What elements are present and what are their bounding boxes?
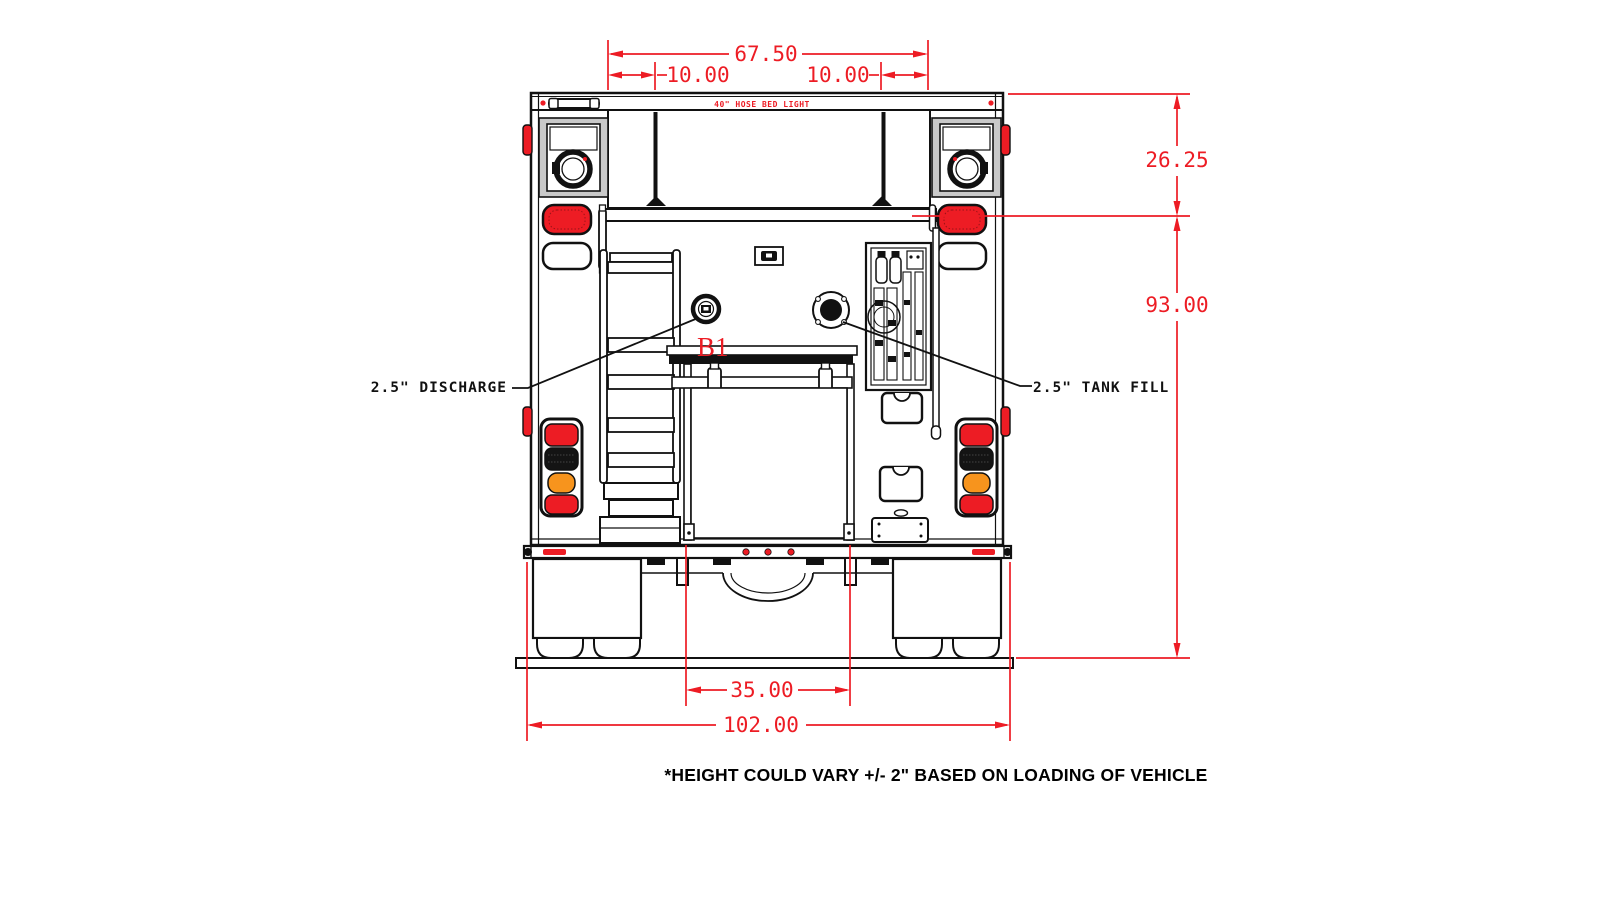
left-mudflap-tires [533, 559, 641, 658]
rear-bumper [524, 546, 1012, 558]
step-bracket-upper [882, 393, 922, 423]
dim-compartment-width: 35.00 [730, 678, 793, 702]
right-backup-light [938, 243, 986, 269]
right-small-handle [930, 205, 936, 231]
pike-pole [932, 228, 941, 439]
camera-bracket [755, 247, 783, 265]
center-marker-light [788, 549, 794, 555]
control-panel [866, 243, 931, 390]
center-marker-light [743, 549, 749, 555]
rear-view-truck-drawing: 40" HOSE BED LIGHT [0, 0, 1600, 900]
right-upper-panel [932, 118, 1001, 197]
left-upper-side-marker [523, 125, 532, 155]
right-mid-side-marker [1001, 407, 1010, 436]
discharge-label: 2.5" DISCHARGE [371, 380, 507, 396]
marker-dot-left [540, 100, 545, 105]
left-upper-brake-light [543, 205, 591, 234]
footnote: *HEIGHT COULD VARY +/- 2" BASED ON LOADI… [664, 765, 1207, 785]
right-reflector [972, 549, 995, 555]
left-backup-light [543, 243, 591, 269]
dim-right-offset: 10.00 [806, 63, 869, 87]
dimension-top-group: 67.50 10.00 10.00 [608, 40, 928, 90]
marker-dot-right [988, 100, 993, 105]
dim-hose-bed-width: 67.50 [734, 42, 797, 66]
hose-bed-beam [604, 209, 936, 221]
right-upper-brake-light [938, 205, 986, 234]
tank-fill-label: 2.5" TANK FILL [1033, 380, 1169, 396]
left-upper-panel [539, 118, 608, 197]
dim-overall-width: 102.00 [723, 713, 799, 737]
center-marker-light [765, 549, 771, 555]
dim-upper-height: 26.25 [1145, 148, 1208, 172]
hose-bed [604, 110, 936, 221]
axle-arch [723, 573, 813, 601]
right-mudflap-tires [893, 559, 1001, 658]
right-upper-side-marker [1001, 125, 1010, 155]
grab-handle [549, 99, 599, 109]
left-mid-side-marker [523, 407, 532, 436]
compartment-id-label: B1 [697, 332, 729, 362]
left-reflector [543, 549, 566, 555]
dim-left-offset: 10.00 [666, 63, 729, 87]
dim-body-height: 93.00 [1145, 293, 1208, 317]
underbody [593, 558, 944, 601]
right-taillight-cluster [956, 419, 997, 516]
license-plate [872, 518, 928, 542]
left-taillight-cluster [541, 419, 582, 516]
ground-line [516, 658, 1013, 668]
hose-bed-light-label: 40" HOSE BED LIGHT [714, 100, 810, 109]
